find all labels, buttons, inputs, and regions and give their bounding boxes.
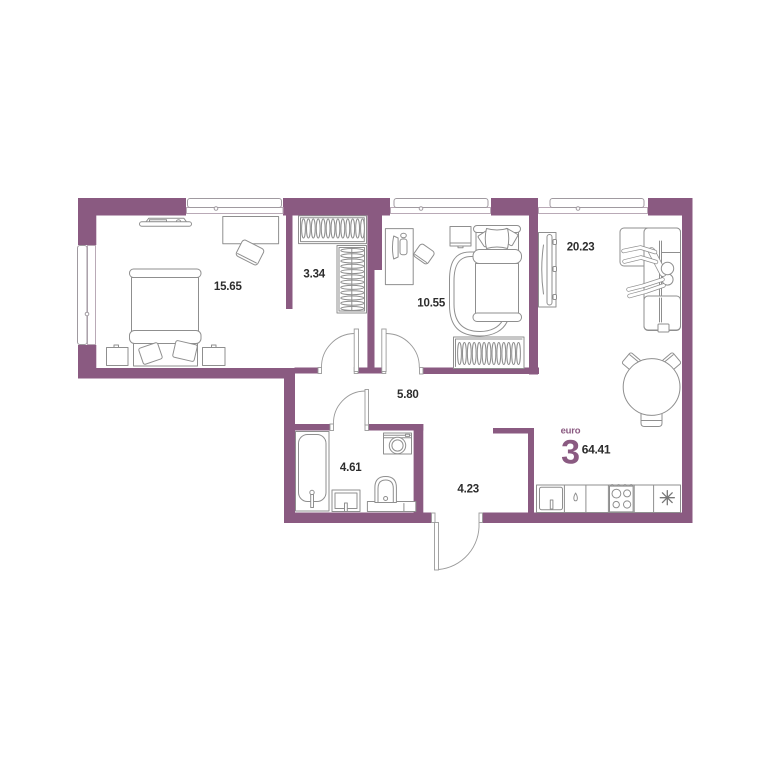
svg-text:4.61: 4.61 (340, 462, 362, 474)
svg-text:3.34: 3.34 (303, 269, 325, 281)
svg-text:4.23: 4.23 (457, 484, 479, 496)
svg-text:15.65: 15.65 (214, 281, 243, 293)
svg-text:10.55: 10.55 (417, 298, 446, 310)
svg-text:64.41: 64.41 (582, 443, 611, 457)
svg-text:5.80: 5.80 (397, 389, 419, 401)
svg-text:20.23: 20.23 (567, 242, 595, 254)
svg-text:3: 3 (561, 434, 580, 472)
